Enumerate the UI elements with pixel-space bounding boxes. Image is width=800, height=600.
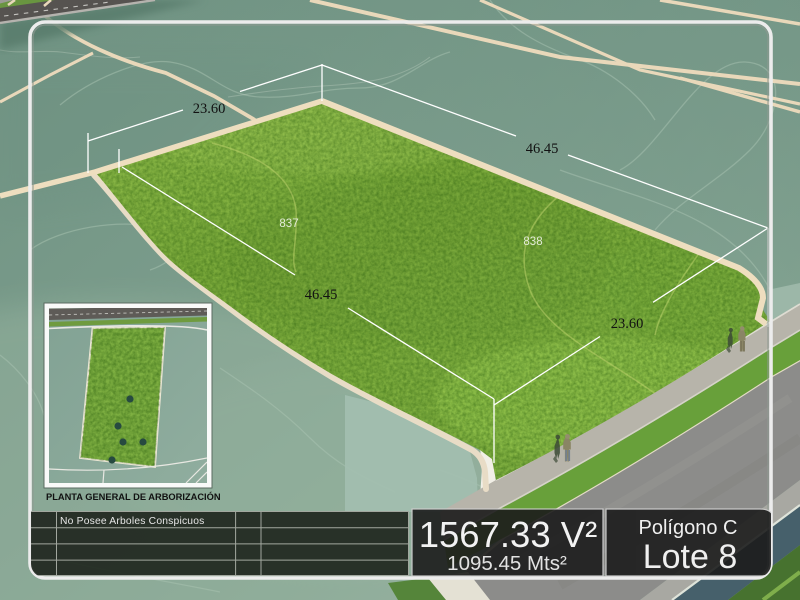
svg-text:No Posee Arboles Conspicuos: No Posee Arboles Conspicuos <box>60 516 205 527</box>
svg-text:PLANTA GENERAL DE ARBORIZACIÓN: PLANTA GENERAL DE ARBORIZACIÓN <box>46 491 221 502</box>
svg-text:23.60: 23.60 <box>193 101 226 117</box>
svg-text:46.45: 46.45 <box>305 287 338 303</box>
svg-text:837: 837 <box>279 218 298 230</box>
svg-text:46.45: 46.45 <box>526 141 559 157</box>
svg-text:1095.45 Mts²: 1095.45 Mts² <box>447 552 567 575</box>
svg-text:Polígono C: Polígono C <box>639 517 738 539</box>
svg-text:1567.33 V²: 1567.33 V² <box>419 514 598 555</box>
svg-text:23.60: 23.60 <box>611 316 644 332</box>
svg-text:Lote 8: Lote 8 <box>643 538 738 576</box>
svg-text:838: 838 <box>523 236 542 248</box>
